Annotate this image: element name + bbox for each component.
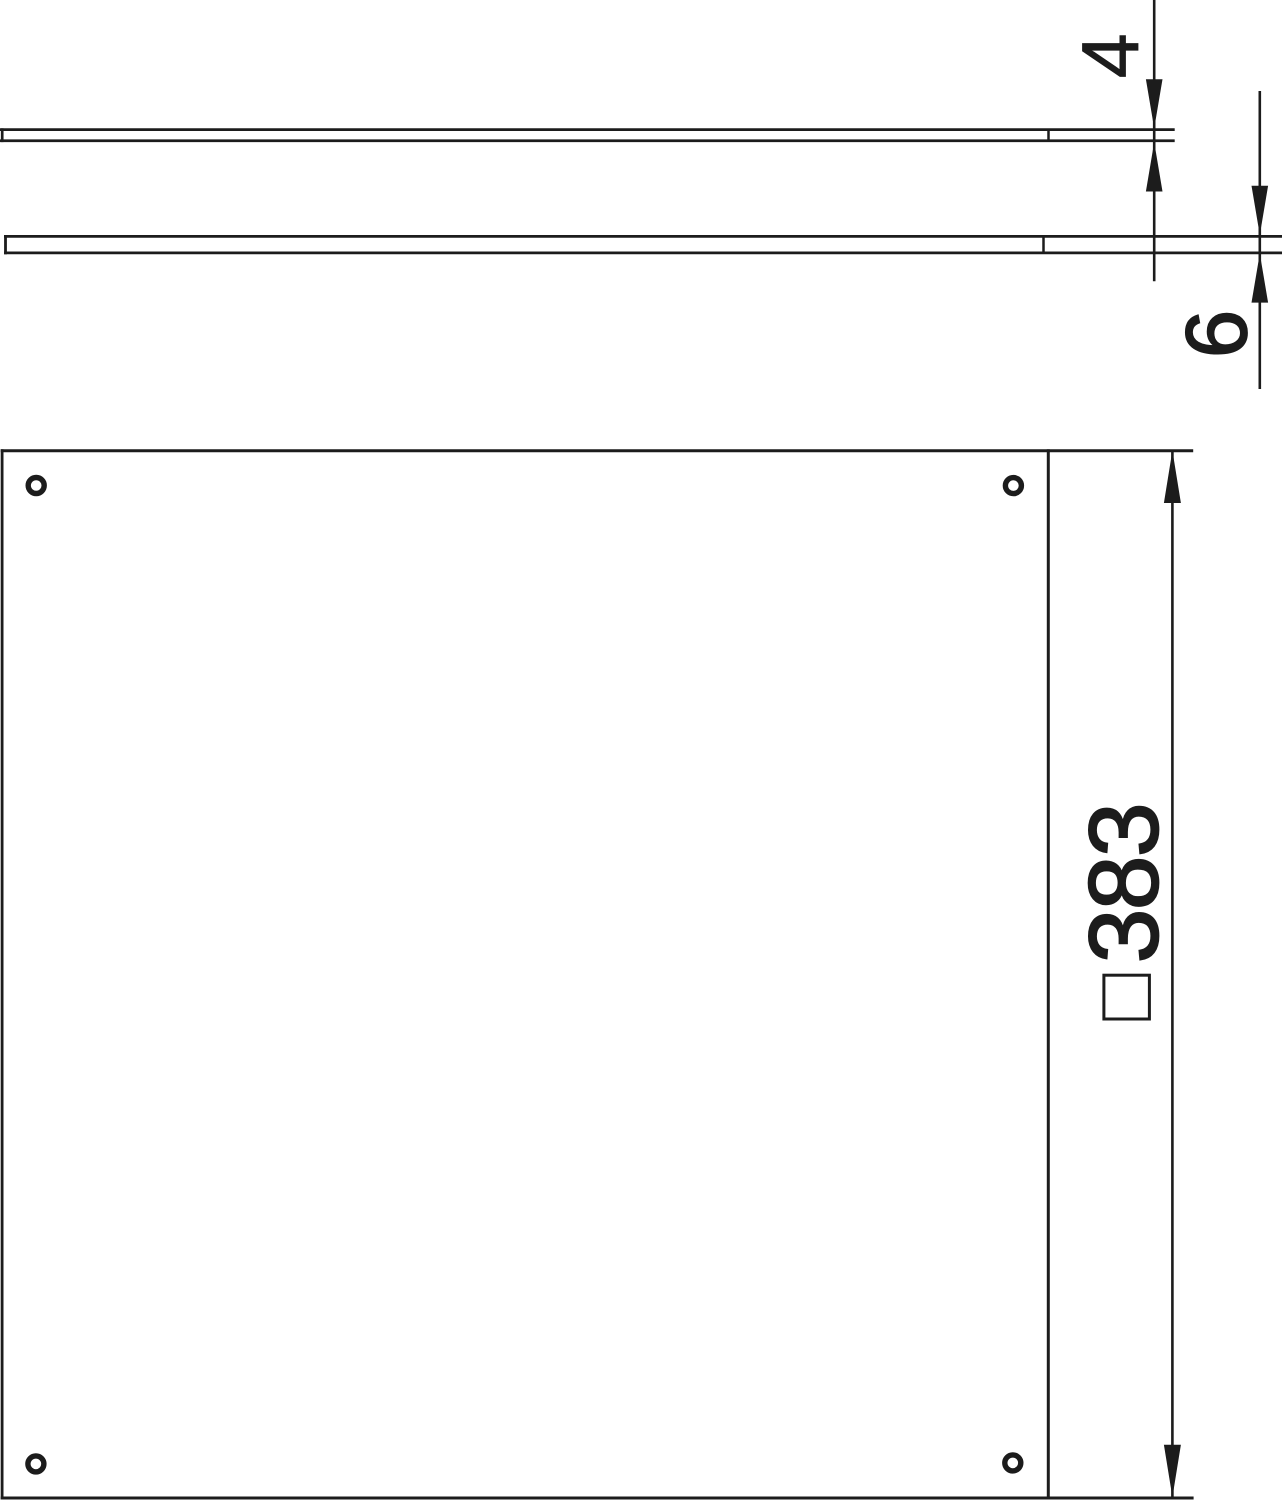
svg-text:6: 6 bbox=[1169, 310, 1265, 358]
svg-text:4: 4 bbox=[1066, 33, 1156, 78]
svg-text:383: 383 bbox=[1069, 804, 1179, 963]
